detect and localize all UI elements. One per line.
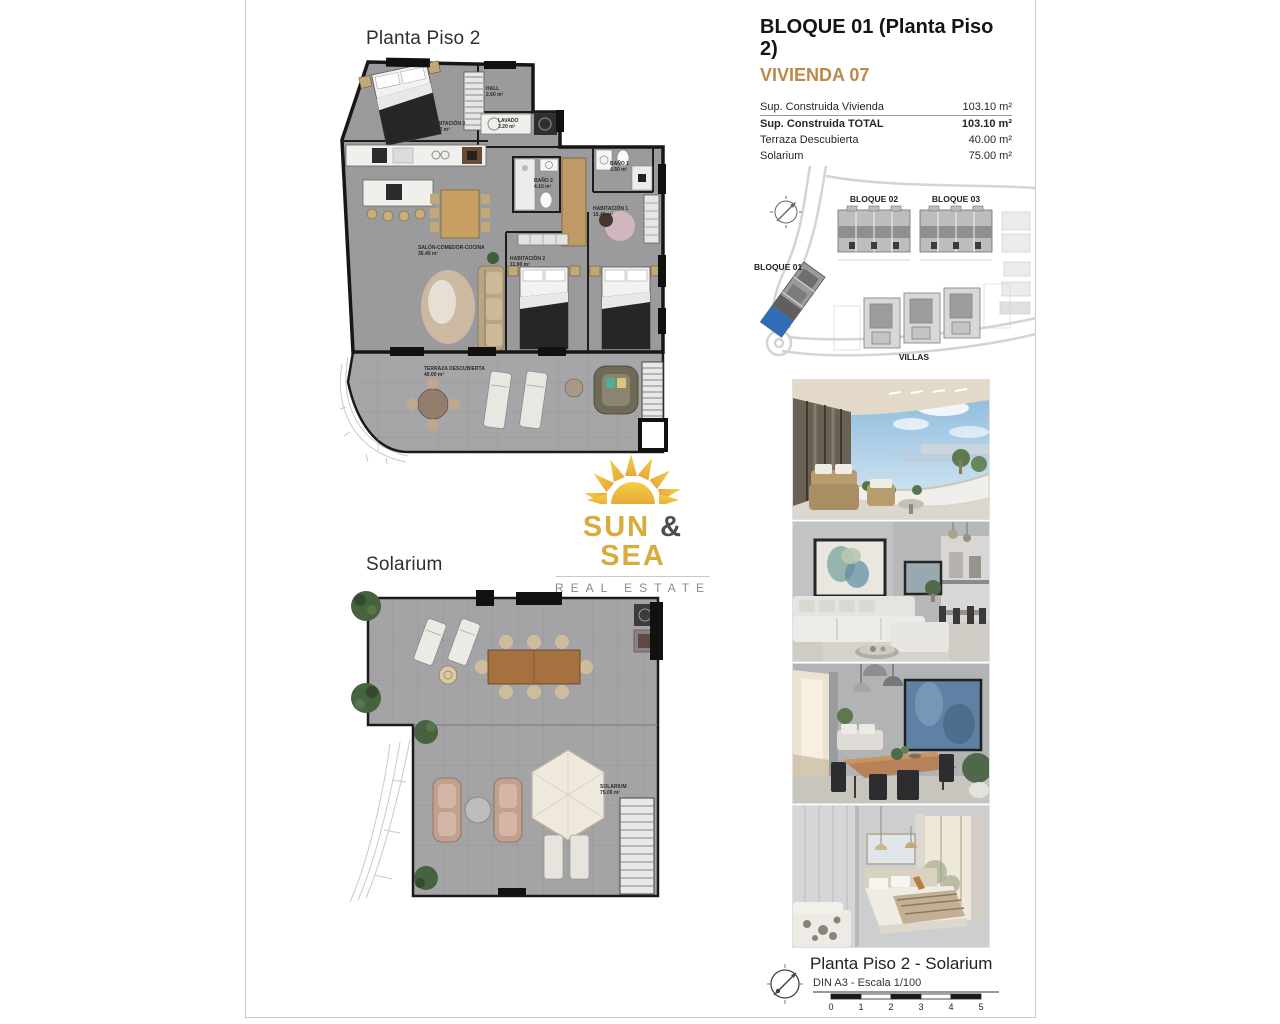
svg-text:BAÑO 2: BAÑO 2 bbox=[534, 177, 553, 184]
area-value: 40.00 m² bbox=[969, 134, 1012, 146]
svg-text:BAÑO 1: BAÑO 1 bbox=[610, 160, 629, 167]
page-title: BLOQUE 01 (Planta Piso 2) bbox=[760, 16, 1015, 60]
scale-tick: 3 bbox=[918, 1002, 923, 1012]
stairs bbox=[640, 362, 666, 450]
logo-sun-text: SUN bbox=[583, 511, 650, 543]
sun-logo-icon bbox=[548, 450, 718, 508]
scale-tick: 4 bbox=[948, 1002, 953, 1012]
solarium-stairs bbox=[620, 798, 654, 894]
svg-text:15.40 m²: 15.40 m² bbox=[593, 212, 613, 218]
area-label: Solarium bbox=[760, 150, 803, 162]
site-bloque01-building bbox=[761, 262, 826, 337]
plan-piso2-title: Planta Piso 2 bbox=[366, 28, 481, 50]
scale-tick: 0 bbox=[828, 1002, 833, 1012]
scale-tick: 2 bbox=[888, 1002, 893, 1012]
site-label-bloque02: BLOQUE 02 bbox=[850, 194, 898, 204]
plan-solarium-title: Solarium bbox=[366, 554, 443, 576]
footer-title: Planta Piso 2 - Solarium bbox=[810, 954, 992, 974]
area-table: Sup. Construida Vivienda103.10 m² Sup. C… bbox=[760, 99, 1012, 164]
svg-text:4.10 m²: 4.10 m² bbox=[534, 184, 552, 190]
table-row: Sup. Construida Vivienda103.10 m² bbox=[760, 99, 1012, 116]
area-label: Terraza Descubierta bbox=[760, 134, 858, 146]
svg-text:4.50 m²: 4.50 m² bbox=[610, 167, 628, 173]
dining-table bbox=[430, 190, 490, 238]
svg-text:HABITACIÓN 1: HABITACIÓN 1 bbox=[593, 204, 628, 212]
scale-bar: 0 1 2 3 4 5 bbox=[813, 991, 1013, 1013]
roads bbox=[767, 166, 1036, 355]
floor-plan-piso2: HALL 2.60 m² HABITACIÓN 3 11.10 m² LAVAD… bbox=[338, 52, 700, 464]
svg-text:11.10 m²: 11.10 m² bbox=[430, 127, 450, 133]
svg-text:HABITACIÓN 3: HABITACIÓN 3 bbox=[430, 119, 465, 127]
svg-text:2.60 m²: 2.60 m² bbox=[486, 92, 504, 98]
site-label-villas: VILLAS bbox=[899, 352, 930, 362]
floor-plan-solarium: SOLARIUM 75.00 m² bbox=[348, 580, 684, 916]
area-value: 75.00 m² bbox=[969, 150, 1012, 162]
area-label: Sup. Construida TOTAL bbox=[760, 118, 884, 130]
vivienda-subtitle: VIVIENDA 07 bbox=[760, 65, 1015, 86]
page: { "header": { "title": "BLOQUE 01 (Plant… bbox=[0, 0, 1280, 1024]
logo-wordmark: SUN & SEA bbox=[548, 513, 718, 571]
table-row: Sup. Construida TOTAL103.10 m² bbox=[760, 116, 1012, 132]
site-bloque03-building bbox=[920, 206, 992, 260]
svg-text:11.90 m²: 11.90 m² bbox=[510, 262, 530, 268]
site-label-bloque01: BLOQUE 01 bbox=[754, 262, 802, 272]
footer-scale-text: DIN A3 - Escala 1/100 bbox=[813, 977, 921, 989]
site-bloque02-building bbox=[838, 206, 910, 260]
logo-ampersand: & bbox=[660, 511, 683, 543]
sun-and-sea-logo: SUN & SEA REAL ESTATE bbox=[548, 450, 718, 595]
compass-icon bbox=[764, 962, 806, 1008]
wardrobe-wall bbox=[562, 158, 586, 246]
svg-text:SALÓN-COMEDOR-COCINA: SALÓN-COMEDOR-COCINA bbox=[418, 243, 485, 251]
svg-text:40.00 m²: 40.00 m² bbox=[424, 372, 444, 378]
table-row: Terraza Descubierta40.00 m² bbox=[760, 132, 1012, 148]
logo-sea-text: SEA bbox=[600, 540, 666, 572]
site-compass-icon bbox=[770, 196, 802, 228]
svg-text:75.00 m²: 75.00 m² bbox=[600, 790, 620, 796]
scale-tick: 1 bbox=[858, 1002, 863, 1012]
svg-text:36.40 m²: 36.40 m² bbox=[418, 251, 438, 257]
svg-text:3.20 m²: 3.20 m² bbox=[498, 124, 516, 130]
photo-bedroom bbox=[792, 805, 990, 948]
solarium-deck bbox=[368, 598, 658, 896]
area-label: Sup. Construida Vivienda bbox=[760, 101, 884, 113]
photo-living-room bbox=[792, 521, 990, 662]
area-value: 103.10 m² bbox=[962, 101, 1012, 113]
site-plan: BLOQUE 02 BLOQUE 03 BLOQUE 01 VILLAS bbox=[752, 166, 1036, 368]
scale-tick: 5 bbox=[978, 1002, 983, 1012]
area-value: 103.10 m² bbox=[962, 118, 1012, 130]
header-block: BLOQUE 01 (Planta Piso 2) VIVIENDA 07 Su… bbox=[760, 16, 1015, 164]
table-row: Solarium75.00 m² bbox=[760, 148, 1012, 164]
svg-text:HABITACIÓN 2: HABITACIÓN 2 bbox=[510, 254, 545, 262]
photo-dining-room bbox=[792, 663, 990, 804]
site-neighbor-plots bbox=[1000, 212, 1030, 314]
photo-terrace bbox=[792, 379, 990, 520]
logo-divider bbox=[556, 576, 710, 577]
site-label-bloque03: BLOQUE 03 bbox=[932, 194, 980, 204]
laundry-fixtures bbox=[481, 114, 557, 135]
